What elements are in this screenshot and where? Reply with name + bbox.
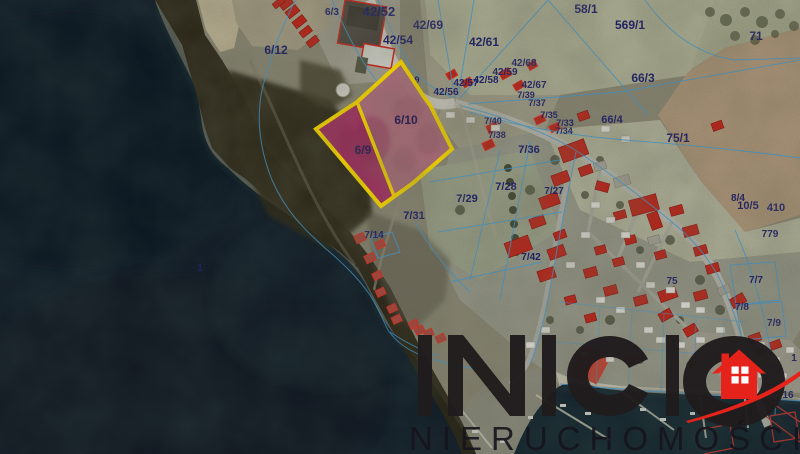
svg-text:NIERUCHOMOŚCI: NIERUCHOMOŚCI	[409, 419, 800, 454]
